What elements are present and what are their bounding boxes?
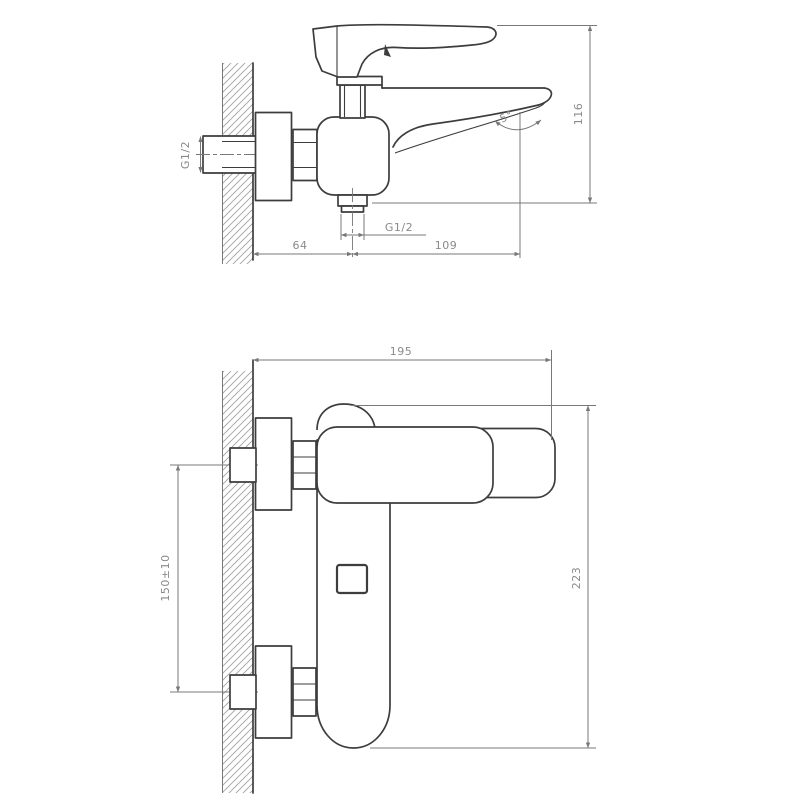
handle-lever-side (313, 25, 496, 77)
dimension-height-116: 116 (372, 26, 597, 204)
wall-flange-bottom (256, 646, 292, 738)
hex-nut-top-front (293, 441, 316, 489)
front-view: 195 150±10 223 (159, 345, 596, 793)
dim-label-64: 64 (293, 239, 308, 252)
dim-label-195: 195 (390, 345, 413, 358)
wall-section-front (222, 360, 253, 793)
eccentric-top (230, 448, 256, 482)
faucet-installation-drawing: G1/2 5° 116 G1/2 64 109 (0, 0, 800, 800)
wall-flange-side (256, 113, 292, 201)
eccentric-bottom (230, 675, 256, 709)
dimension-inlet-spacing: 150±10 (159, 465, 178, 692)
wall-hatch (222, 371, 253, 793)
technical-drawing-page: G1/2 5° 116 G1/2 64 109 (0, 0, 800, 800)
spout-side (382, 88, 551, 153)
dim-label-223: 223 (570, 567, 583, 590)
side-view: G1/2 5° 116 G1/2 64 109 (179, 25, 597, 264)
dimension-depth-chain: 64 109 (253, 239, 520, 254)
dim-label-inlet-thread: G1/2 (179, 141, 192, 169)
hex-nut-bottom-front (293, 668, 316, 716)
body-cap-front (317, 427, 493, 503)
dimension-spout-angle: 5° (495, 108, 541, 258)
dim-label-150: 150±10 (159, 554, 172, 601)
shower-outlet-side (338, 188, 367, 260)
diverter-button (337, 565, 367, 593)
dim-label-outlet-thread: G1/2 (385, 221, 413, 234)
body-top-arc (317, 404, 375, 430)
dimension-width-195: 195 (253, 345, 552, 440)
cartridge-stem (337, 77, 382, 119)
dim-label-116: 116 (572, 103, 585, 126)
wall-flange-top (256, 418, 292, 510)
hex-nut-side (293, 130, 317, 181)
dim-label-109: 109 (435, 239, 458, 252)
dimension-outlet-thread: G1/2 (341, 214, 426, 240)
mixer-body-side (317, 117, 389, 195)
